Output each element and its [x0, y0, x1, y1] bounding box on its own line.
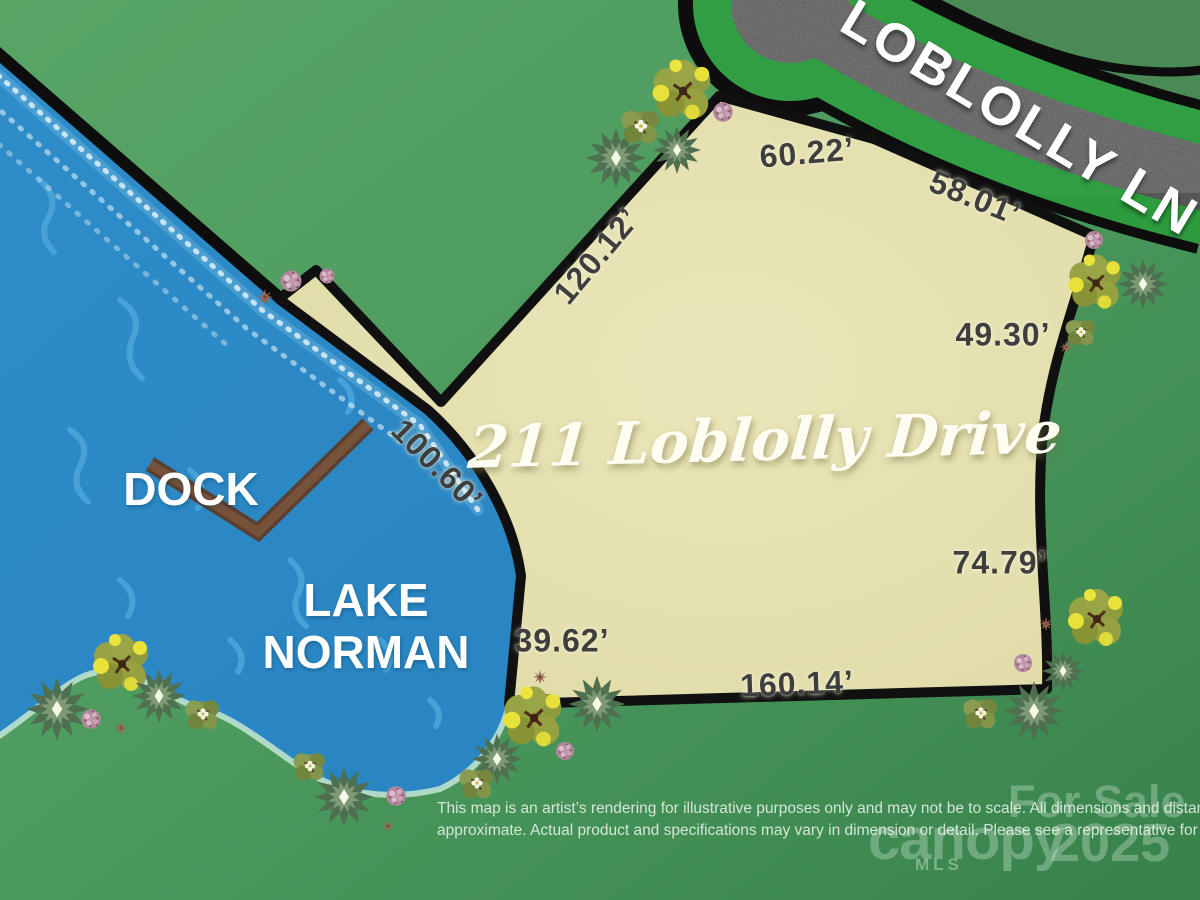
watermark-brand: canopy: [868, 806, 1065, 873]
dock-label: DOCK: [123, 462, 258, 516]
watermark-year: 2025: [1050, 812, 1170, 874]
lake-name-line2: NORMAN: [263, 625, 470, 679]
lake-name-line1: LAKE: [303, 573, 428, 627]
plat-map-screenshot: { "map_title": "211 Loblolly Drive", "ro…: [0, 0, 1200, 900]
dimension-southwest-side: 39.62’: [515, 623, 610, 660]
dimension-east-upper-side: 49.30’: [956, 317, 1051, 354]
dimension-south-side: 160.14’: [740, 664, 855, 705]
dimension-east-lower-side: 74.79’: [953, 545, 1048, 582]
watermark-mls: MLS: [915, 855, 963, 875]
